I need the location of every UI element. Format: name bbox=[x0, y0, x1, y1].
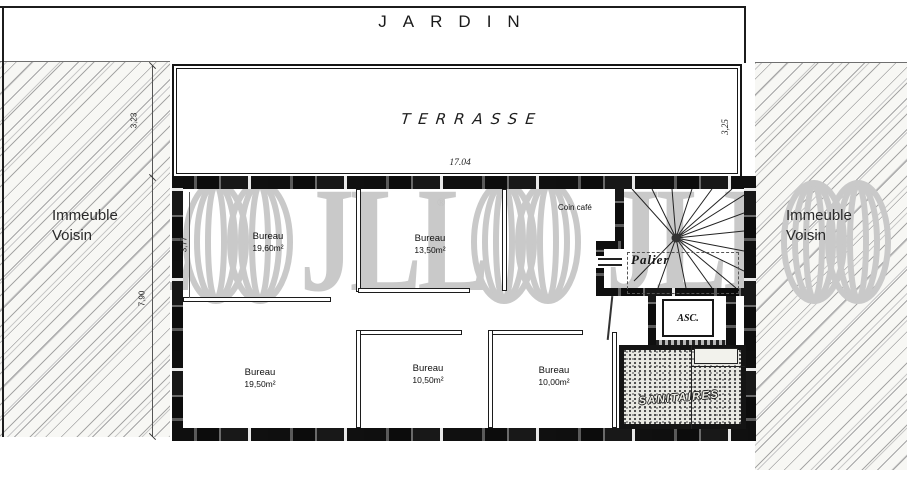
room-name: Bureau bbox=[512, 365, 596, 377]
wall-north bbox=[172, 176, 756, 189]
room-bureau-2: Bureau 13,50m² bbox=[388, 233, 472, 256]
room-bureau-1: Bureau 19,60m² bbox=[226, 231, 310, 254]
dimension-terrace-width: 17.04 bbox=[430, 158, 490, 168]
room-bureau-3: Bureau 19,50m² bbox=[218, 367, 302, 390]
dimension-line-room bbox=[189, 192, 190, 298]
room-area: 19,50m² bbox=[218, 379, 302, 390]
stair-wall-jog bbox=[596, 241, 624, 249]
dimension-terrace-left: 3,23 bbox=[129, 113, 138, 129]
sanitary-divider-h bbox=[691, 366, 745, 367]
floor-plan: JLL JLL ® JLL ® JARDIN TERRASSE 17.04 bbox=[0, 0, 907, 481]
neighbor-right-label: Immeuble Voisin bbox=[786, 206, 852, 246]
neighbor-line2: Voisin bbox=[786, 226, 852, 246]
partition-bureau1-bureau3 bbox=[183, 297, 331, 302]
room-area: 10,00m² bbox=[512, 377, 596, 388]
room-name: Bureau bbox=[388, 233, 472, 245]
garden-label: JARDIN bbox=[307, 12, 607, 32]
room-name: Bureau bbox=[386, 363, 470, 375]
neighbor-line1: Immeuble bbox=[52, 206, 118, 226]
partition-bureau3-bureau4 bbox=[356, 330, 361, 428]
dimension-floor-left: 7,90 bbox=[137, 291, 146, 307]
room-name: Bureau bbox=[226, 231, 310, 243]
landing-door-icon bbox=[598, 264, 622, 266]
landing-door-icon bbox=[598, 258, 622, 260]
elevator-wall-left bbox=[648, 296, 656, 348]
sanitary-divider-v bbox=[691, 345, 692, 429]
neighbor-parcel-left bbox=[0, 61, 170, 437]
stair-wall-left bbox=[615, 189, 624, 247]
elevator-cab-outline: ASC. bbox=[662, 299, 714, 337]
landing-label: Palier bbox=[631, 252, 670, 268]
partition-bureau2-coincafe bbox=[502, 189, 507, 291]
terrace-label: TERRASSE bbox=[371, 110, 573, 128]
partition-bureau1-bureau2 bbox=[356, 189, 361, 292]
elevator-label: ASC. bbox=[677, 313, 698, 324]
sanitary-fixture-box bbox=[694, 348, 738, 364]
coffee-corner-label: Coin café bbox=[558, 203, 630, 212]
dimension-room-left: 3,77 bbox=[179, 237, 188, 253]
room-area: 13,50m² bbox=[388, 245, 472, 256]
room-area: 10,50m² bbox=[386, 375, 470, 386]
watermark-rings-icon bbox=[468, 180, 594, 306]
elevator-wall-right bbox=[726, 296, 736, 348]
site-boundary-top bbox=[0, 6, 746, 8]
site-boundary-left bbox=[2, 6, 4, 437]
site-boundary-right bbox=[744, 6, 746, 63]
room-area: 19,60m² bbox=[226, 243, 310, 254]
wall-west bbox=[172, 176, 183, 441]
dimension-terrace-right: 3,25 bbox=[720, 119, 730, 135]
registered-mark-icon: ® bbox=[437, 197, 445, 209]
partition-bureau5-corridor bbox=[488, 330, 583, 335]
neighbor-line2: Voisin bbox=[52, 226, 118, 246]
partition-bureau4-bureau5 bbox=[488, 330, 493, 428]
room-bureau-5: Bureau 10,00m² bbox=[512, 365, 596, 388]
partition-bureau2-corridor bbox=[358, 288, 470, 293]
room-name: Bureau bbox=[218, 367, 302, 379]
neighbor-line1: Immeuble bbox=[786, 206, 852, 226]
room-bureau-4: Bureau 10,50m² bbox=[386, 363, 470, 386]
neighbor-left-label: Immeuble Voisin bbox=[52, 206, 118, 246]
partition-bureau5-sanitaires bbox=[612, 332, 617, 428]
partition-bureau4-corridor bbox=[360, 330, 462, 335]
dimension-line-left bbox=[152, 66, 153, 437]
wall-south bbox=[172, 428, 756, 441]
